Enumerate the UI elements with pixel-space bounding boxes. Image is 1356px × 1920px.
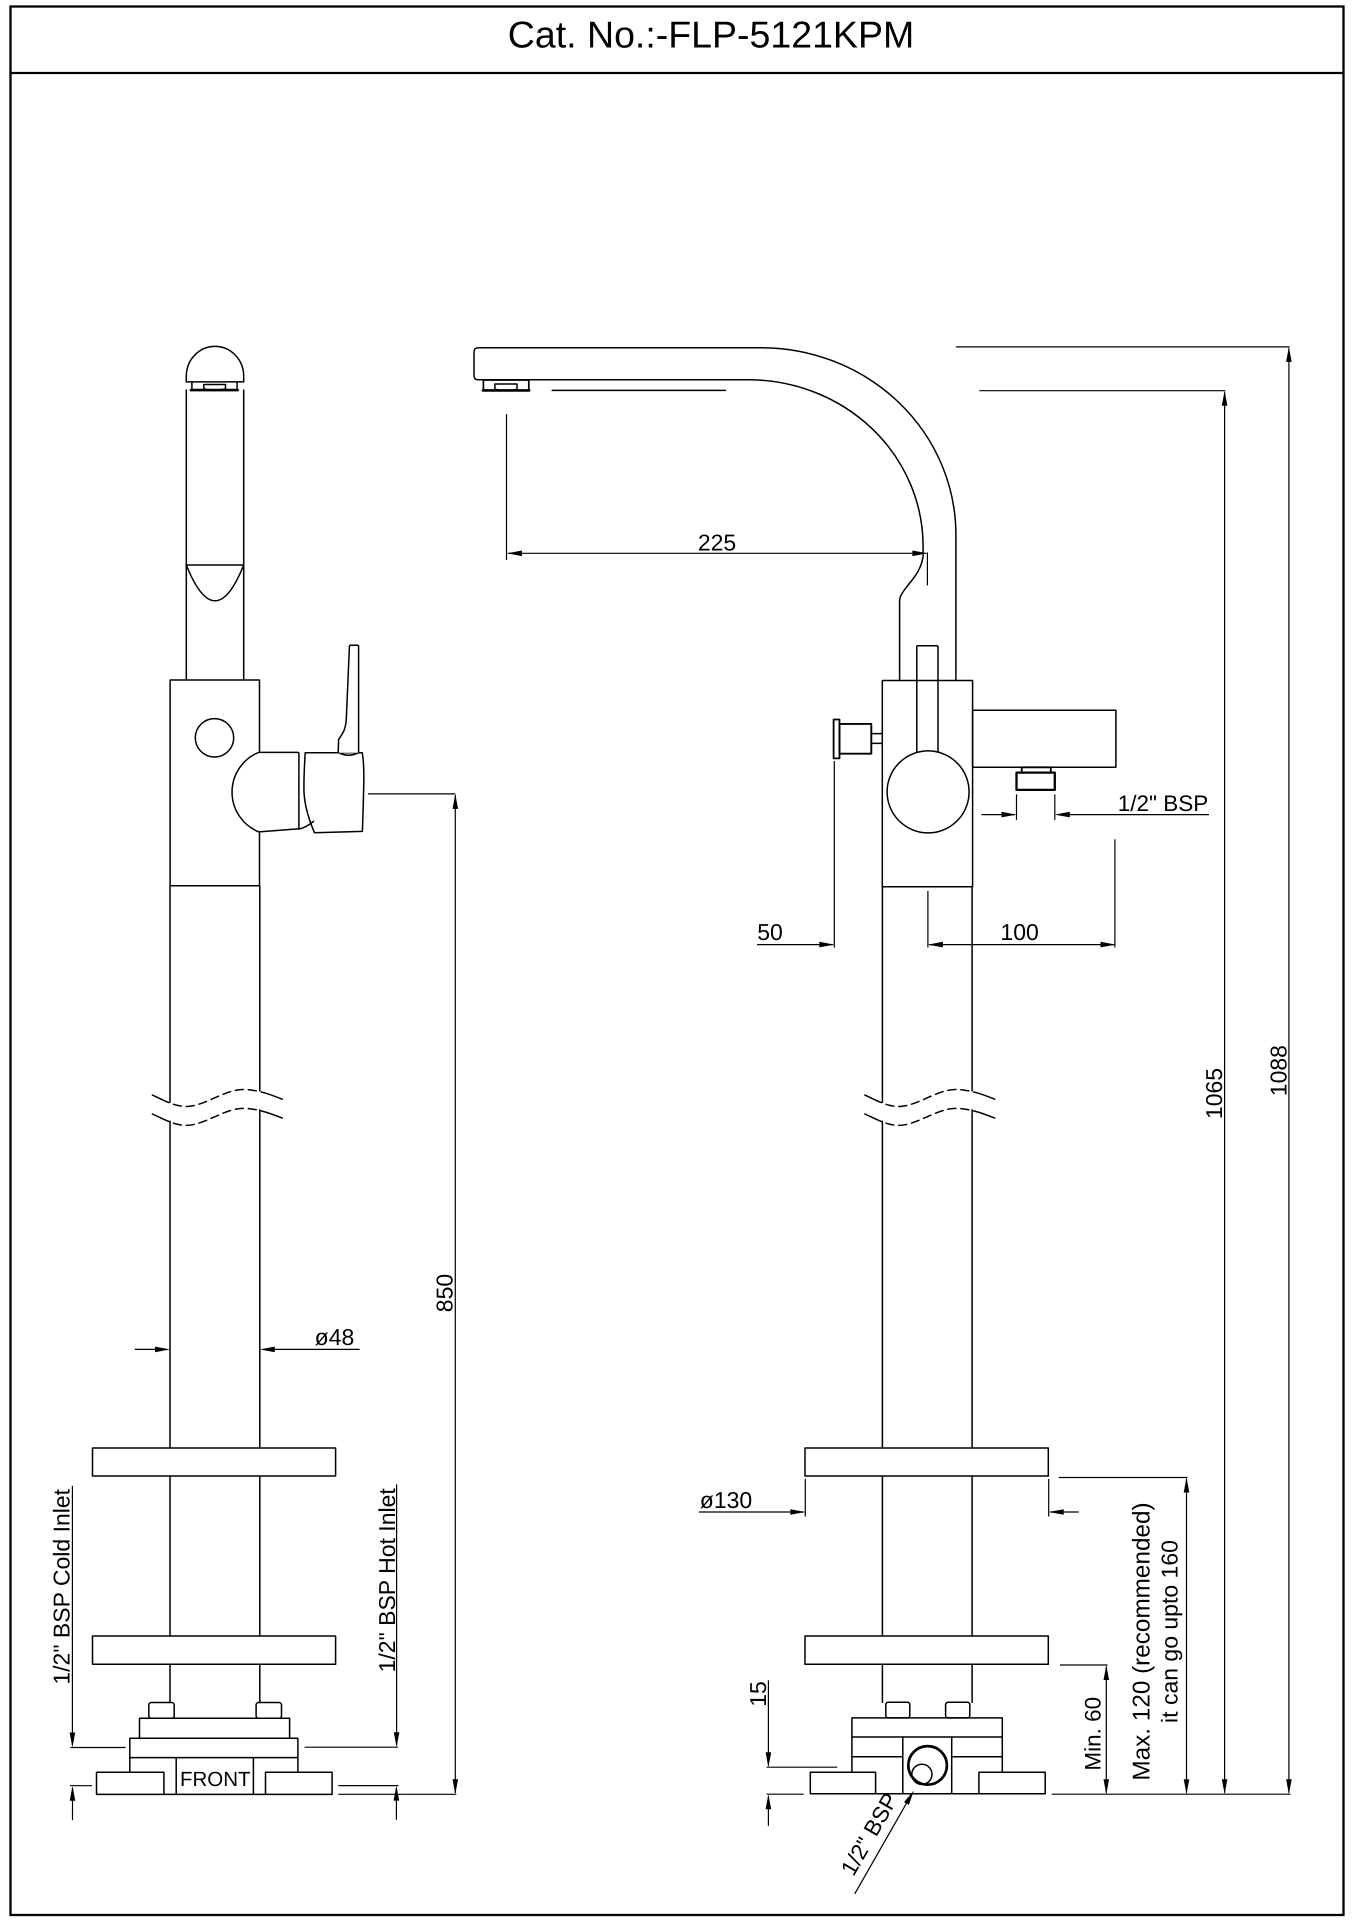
svg-text:it can go upto 160: it can go upto 160 (1157, 1540, 1183, 1723)
svg-text:1/2" BSP Cold Inlet: 1/2" BSP Cold Inlet (49, 1488, 75, 1684)
svg-text:225: 225 (698, 529, 736, 555)
svg-text:Cat. No.:-FLP-5121KPM: Cat. No.:-FLP-5121KPM (508, 14, 914, 56)
svg-text:Min. 60: Min. 60 (1081, 1697, 1106, 1771)
svg-text:1065: 1065 (1201, 1068, 1227, 1119)
svg-text:15: 15 (745, 1681, 771, 1707)
svg-text:Max. 120 (recommended): Max. 120 (recommended) (1129, 1502, 1156, 1780)
svg-text:50: 50 (757, 919, 783, 945)
svg-text:ø130: ø130 (700, 1487, 752, 1513)
svg-text:1/2" BSP: 1/2" BSP (1118, 791, 1209, 816)
svg-text:850: 850 (432, 1274, 458, 1312)
svg-text:FRONT: FRONT (180, 1768, 251, 1791)
svg-text:1/2" BSP Hot Inlet: 1/2" BSP Hot Inlet (374, 1488, 400, 1673)
svg-text:1088: 1088 (1266, 1045, 1292, 1096)
svg-text:100: 100 (1000, 919, 1038, 945)
svg-text:ø48: ø48 (315, 1324, 355, 1350)
